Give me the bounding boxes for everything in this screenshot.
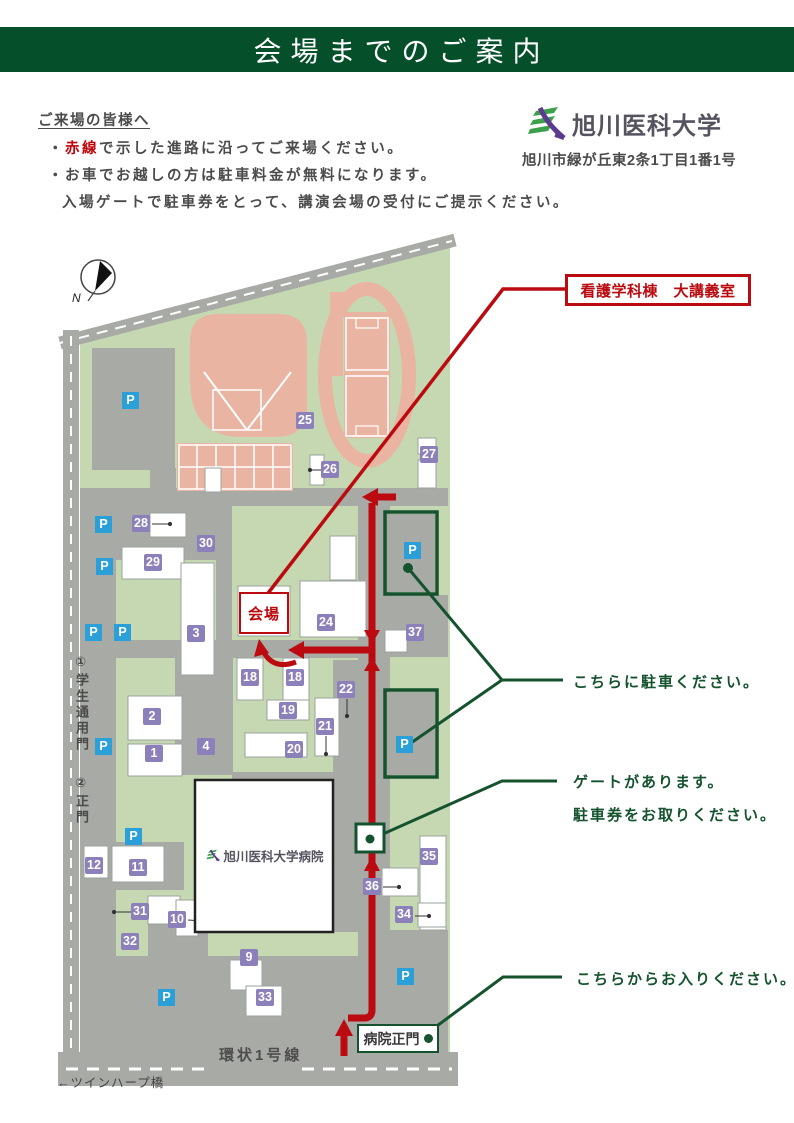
building-label: 10 [168, 911, 186, 928]
page: 会場までのご案内 ご来場の皆様へ ・赤線で示した進路に沿ってご来場ください。 ・… [0, 0, 794, 1123]
ring-road-label: 環状1号線 [219, 1044, 302, 1065]
red-line-word: 赤線 [65, 141, 99, 157]
parking-icon: P [404, 542, 421, 559]
parking-icon: P [114, 624, 131, 641]
parking-icon: P [122, 392, 139, 409]
compass-north-label: N [72, 291, 81, 305]
building-label: 19 [279, 702, 297, 719]
destination-label-box: 看護学科棟 大講義室 [565, 274, 751, 306]
gate-icon [356, 824, 384, 852]
building-label: 36 [363, 878, 381, 895]
gate2-label: ②正門 [72, 776, 91, 846]
parking-icon: P [95, 516, 112, 533]
hospital-gate-label-box: 病院正門 [357, 1024, 439, 1053]
gate-dot-icon [424, 1034, 433, 1043]
building-label: 20 [285, 741, 303, 758]
hospital-logo-icon [206, 849, 221, 862]
university-logo-icon [528, 105, 568, 142]
building-label: 18 [241, 669, 259, 686]
building-label: 30 [197, 535, 215, 552]
intro-line-3: 入場ゲートで駐車券をとって、講演会場の受付にご提示ください。 [62, 191, 570, 212]
building-label: 18 [286, 669, 304, 686]
page-title: 会場までのご案内 [244, 30, 549, 70]
building-label: 31 [131, 903, 149, 920]
building-label: 28 [132, 515, 150, 532]
gate1-label: ①学生通用門 [72, 655, 91, 767]
building-label: 25 [296, 412, 314, 429]
building-label: 24 [317, 614, 335, 631]
page-title-banner: 会場までのご案内 [0, 27, 794, 72]
building-label: 34 [395, 906, 413, 923]
building-label: 11 [129, 859, 147, 876]
venue-label-box: 会場 [239, 592, 289, 634]
annotation-gate-line2: 駐車券をお取りください。 [573, 804, 777, 825]
university-address: 旭川市緑が丘東2条1丁目1番1号 [522, 149, 736, 170]
building-label: 37 [406, 624, 424, 641]
intro-bullet-2: ・お車でお越しの方は駐車料金が無料になります。 [48, 164, 438, 185]
hospital-logo-block: 旭川医科大学病院 [203, 846, 327, 865]
annotation-gate-line1: ゲートがあります。 [573, 771, 725, 792]
building-label: 3 [187, 625, 205, 642]
bullet-mark: ・ [48, 141, 65, 157]
university-name: 旭川医科大学 [572, 106, 722, 141]
hospital-name: 旭川医科大学病院 [223, 846, 323, 865]
annotation-park-here: こちらに駐車ください。 [573, 671, 760, 692]
parking-icon: P [95, 738, 112, 755]
parking-icon: P [85, 624, 102, 641]
parking-icon: P [125, 828, 142, 845]
hospital-gate-label: 病院正門 [364, 1029, 420, 1049]
building-label: 35 [420, 848, 438, 865]
parking-icon: P [96, 558, 113, 575]
building-label: 32 [121, 933, 139, 950]
building-label: 29 [144, 554, 162, 571]
bridge-label: ←ツインハープ橋 [57, 1072, 164, 1091]
building-label: 22 [337, 681, 355, 698]
building-label: 9 [240, 949, 258, 966]
intro-bullet-1: ・赤線で示した進路に沿ってご来場ください。 [48, 137, 404, 158]
university-logo-block: 旭川医科大学 [528, 105, 722, 142]
annotation-enter-here: こちらからお入りください。 [576, 968, 794, 989]
building-label: 27 [420, 446, 438, 463]
building-label: 21 [316, 718, 334, 735]
building-label: 2 [143, 708, 161, 725]
building-label: 4 [197, 738, 215, 755]
compass-icon [81, 260, 115, 301]
building-label: 1 [145, 745, 163, 762]
bullet-1-rest: で示した進路に沿ってご来場ください。 [99, 141, 404, 157]
building-label: 26 [321, 461, 339, 478]
building-label: 33 [256, 989, 274, 1006]
building-label: 12 [85, 857, 103, 874]
parking-icon: P [397, 968, 414, 985]
intro-heading: ご来場の皆様へ [38, 109, 150, 130]
parking-icon: P [396, 736, 413, 753]
parking-icon: P [158, 989, 175, 1006]
